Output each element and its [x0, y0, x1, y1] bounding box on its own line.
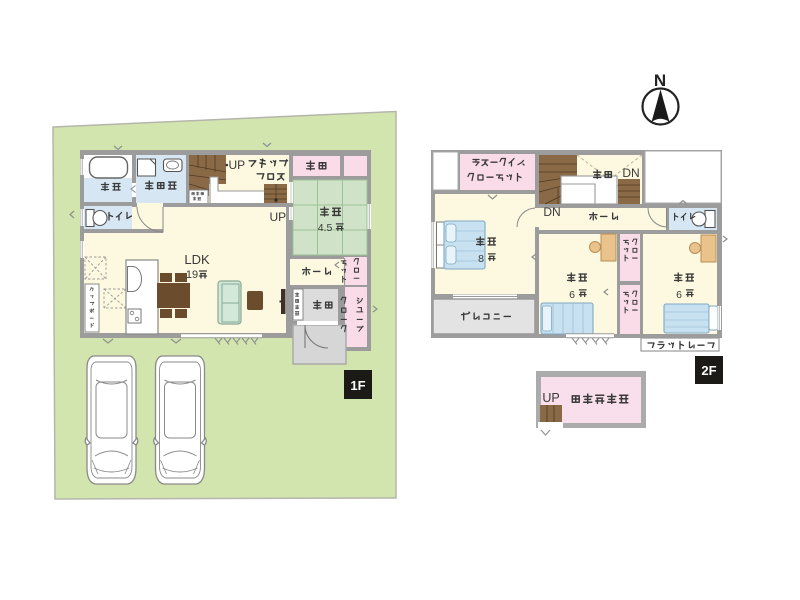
svg-text:N: N [654, 71, 666, 90]
svg-text:6: 6 [569, 289, 575, 301]
svg-text:LDK: LDK [184, 252, 210, 267]
svg-text:UP: UP [542, 391, 559, 405]
svg-text:DN: DN [622, 166, 639, 180]
svg-text:8: 8 [478, 253, 484, 265]
svg-text:4.5: 4.5 [318, 222, 333, 234]
svg-text:UP: UP [229, 158, 246, 172]
svg-text:1F: 1F [350, 378, 365, 393]
svg-text:UP: UP [270, 210, 287, 224]
svg-text:DN: DN [543, 205, 560, 219]
svg-text:2F: 2F [701, 363, 716, 378]
svg-text:6: 6 [676, 289, 682, 301]
svg-text:19: 19 [186, 269, 198, 281]
